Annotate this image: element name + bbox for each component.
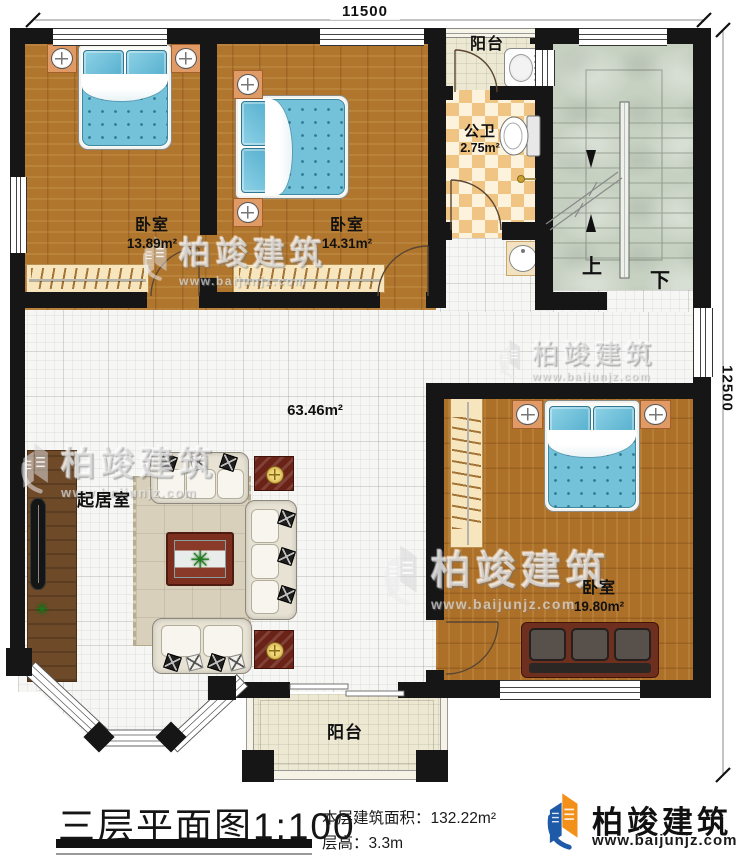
room-area: 63.46m²: [270, 402, 360, 420]
floor-height-row: 层高：3.3m: [322, 831, 403, 853]
room-area: 13.89m²: [107, 236, 197, 252]
stair-arrow-icon: [586, 214, 596, 232]
floor-area-label: 本层建筑面积：: [322, 810, 431, 827]
room-name: 起居室: [66, 491, 142, 511]
dimension-top-label: 11500: [330, 3, 400, 20]
room-area: 14.31m²: [302, 236, 392, 252]
door-bathroom: [451, 180, 501, 230]
stairs-up-label: 上: [577, 256, 607, 280]
door-balcony-top: [455, 50, 497, 92]
room-name: 卧室: [107, 217, 197, 236]
room-name: 阳台: [452, 36, 522, 55]
room-area: 19.80m²: [553, 599, 645, 615]
stairs-down-label: 下: [645, 270, 675, 294]
brand-logo: [541, 792, 585, 855]
bedroom2-label: 卧室 14.31m²: [302, 217, 392, 252]
title-underline-thin: [56, 853, 312, 855]
stair-break-line: [546, 172, 622, 230]
door-bedroom1: [151, 248, 199, 296]
stairs: [546, 70, 693, 278]
balcony-top-label: 阳台: [452, 36, 522, 55]
bay-window: [6, 648, 248, 753]
room-name: 公卫: [448, 123, 512, 141]
stair-arrow-icon: [586, 150, 596, 168]
floorplan-page: ✳ ✳: [0, 0, 750, 860]
floor-height-value: 3.3m: [369, 835, 403, 852]
bathroom-label: 公卫 2.75m²: [448, 123, 512, 155]
brand-url: www.baijunjz.com: [592, 832, 737, 849]
room-name: 卧室: [302, 217, 392, 236]
brand-logo-icon: [541, 792, 585, 850]
bedroom1-label: 卧室 13.89m²: [107, 217, 197, 252]
dimension-right-label: 12500: [719, 359, 736, 419]
balcony-bottom-label: 阳台: [303, 723, 387, 743]
sliding-door: [290, 684, 404, 696]
door-bedroom2: [378, 246, 428, 296]
title-underline: [56, 839, 312, 848]
door-bedroom3: [446, 622, 498, 674]
living-room-label: 起居室: [66, 491, 142, 511]
living-room-area-label: 63.46m²: [270, 402, 360, 420]
bedroom3-label: 卧室 19.80m²: [553, 580, 645, 615]
floor-area-row: 本层建筑面积：132.22m²: [322, 806, 496, 828]
floor-area-value: 132.22m²: [431, 810, 496, 827]
room-name: 卧室: [553, 580, 645, 599]
room-name: 阳台: [303, 723, 387, 743]
room-area: 2.75m²: [448, 141, 512, 156]
floor-height-label: 层高：: [322, 835, 369, 852]
towel-hook: [518, 176, 537, 183]
